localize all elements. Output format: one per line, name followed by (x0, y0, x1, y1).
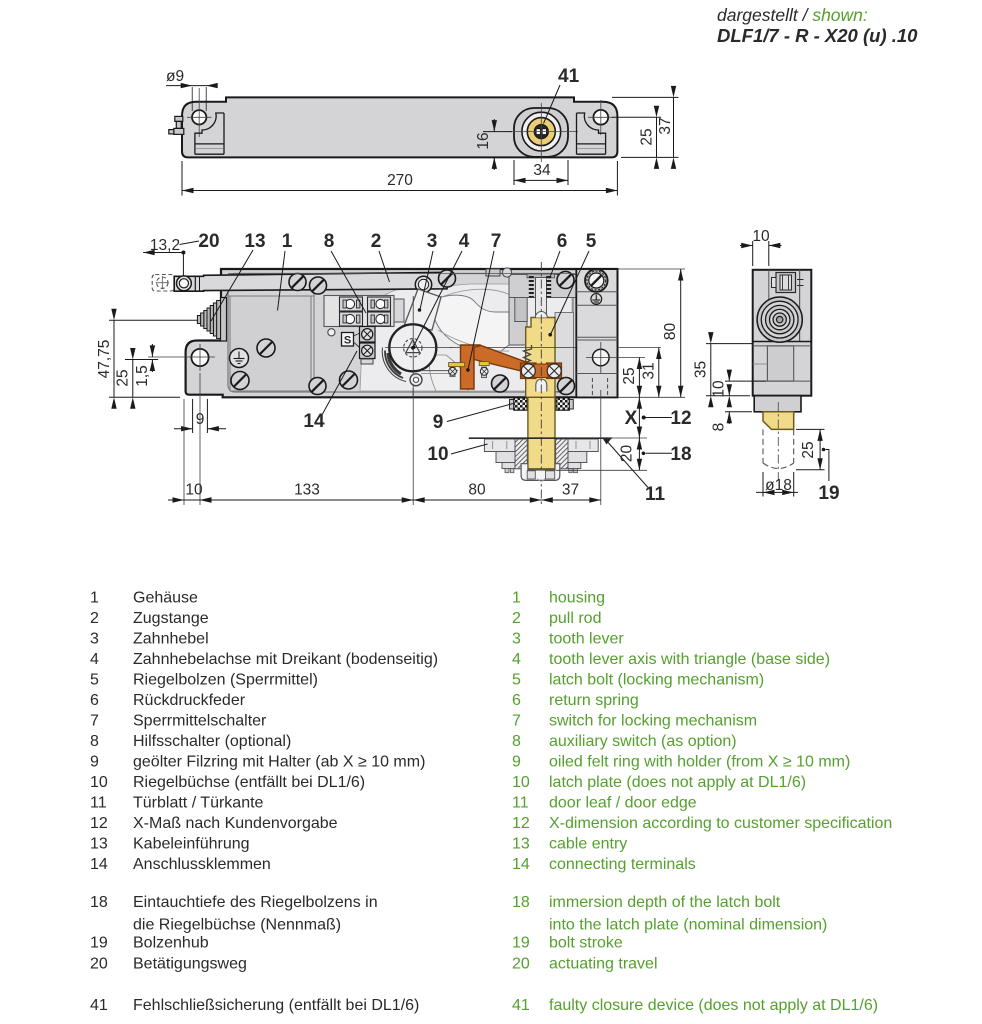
svg-text:tooth lever axis with triangle: tooth lever axis with triangle (base sid… (549, 651, 830, 668)
svg-text:5: 5 (512, 672, 521, 689)
svg-text:14: 14 (512, 856, 530, 873)
svg-text:X-Maß nach Kundenvorgabe: X-Maß nach Kundenvorgabe (133, 815, 338, 832)
svg-text:die Riegelbüchse (Nennmaß): die Riegelbüchse (Nennmaß) (133, 917, 341, 934)
svg-text:oiled felt ring with holder (f: oiled felt ring with holder (from X ≥ 10… (549, 754, 850, 771)
svg-text:6: 6 (90, 692, 99, 709)
svg-text:S: S (344, 335, 351, 347)
svg-text:9: 9 (90, 754, 99, 771)
svg-text:1: 1 (90, 590, 99, 607)
svg-text:Anschlussklemmen: Anschlussklemmen (133, 856, 271, 873)
svg-text:DLF1/7 - R - X20 (u) .10: DLF1/7 - R - X20 (u) .10 (717, 25, 918, 46)
svg-text:9: 9 (433, 412, 444, 433)
svg-text:12: 12 (670, 408, 691, 429)
svg-text:10: 10 (711, 380, 728, 398)
svg-text:13: 13 (512, 836, 530, 853)
svg-text:31: 31 (641, 362, 658, 379)
svg-text:Rückdruckfeder: Rückdruckfeder (133, 692, 246, 709)
svg-text:latch plate (does not apply at: latch plate (does not apply at DL1/6) (549, 774, 806, 791)
svg-text:19: 19 (818, 483, 839, 504)
svg-text:Zahnhebel: Zahnhebel (133, 631, 209, 648)
svg-text:immersion depth of the latch b: immersion depth of the latch bolt (549, 894, 781, 911)
svg-text:7: 7 (491, 231, 502, 252)
svg-text:20: 20 (198, 231, 219, 252)
svg-text:270: 270 (387, 172, 413, 189)
svg-text:8: 8 (512, 733, 521, 750)
svg-text:20: 20 (90, 956, 108, 973)
svg-text:X: X (625, 408, 638, 429)
svg-text:12: 12 (512, 815, 530, 832)
svg-text:25: 25 (621, 367, 638, 384)
svg-text:35: 35 (693, 361, 710, 378)
svg-text:Türblatt / Türkante: Türblatt / Türkante (133, 795, 264, 812)
svg-text:80: 80 (662, 323, 679, 341)
svg-text:25: 25 (639, 128, 656, 145)
svg-text:11: 11 (512, 795, 529, 812)
svg-text:18: 18 (90, 894, 108, 911)
svg-text:1: 1 (512, 590, 521, 607)
svg-text:25: 25 (115, 369, 132, 386)
svg-text:Sperrmittelschalter: Sperrmittelschalter (133, 713, 267, 730)
svg-text:47,75: 47,75 (96, 340, 113, 379)
svg-text:7: 7 (90, 713, 99, 730)
svg-text:6: 6 (557, 231, 568, 252)
svg-text:133: 133 (294, 482, 320, 499)
svg-text:12: 12 (90, 815, 108, 832)
svg-text:9: 9 (512, 754, 521, 771)
svg-text:faulty closure device (does no: faulty closure device (does not apply at… (549, 997, 878, 1014)
svg-text:16: 16 (475, 132, 492, 149)
svg-text:bolt stroke: bolt stroke (549, 935, 623, 952)
svg-text:Hilfsschalter (optional): Hilfsschalter (optional) (133, 733, 291, 750)
svg-text:41: 41 (558, 66, 580, 87)
svg-text:latch bolt (locking mechanism): latch bolt (locking mechanism) (549, 672, 764, 689)
svg-text:10: 10 (752, 228, 770, 245)
svg-text:3: 3 (512, 631, 521, 648)
svg-text:6: 6 (512, 692, 521, 709)
svg-text:X-dimension according to custo: X-dimension according to customer specif… (549, 815, 892, 832)
svg-text:2: 2 (371, 231, 382, 252)
svg-text:Fehlschließsicherung (entfällt: Fehlschließsicherung (entfällt bei DL1/6… (133, 997, 419, 1014)
svg-text:14: 14 (303, 411, 325, 432)
svg-text:Zahnhebelachse mit Dreikant (b: Zahnhebelachse mit Dreikant (bodenseitig… (133, 651, 438, 668)
svg-text:8: 8 (324, 231, 335, 252)
svg-text:41: 41 (90, 997, 108, 1014)
svg-text:3: 3 (427, 231, 438, 252)
svg-text:Riegelbolzen (Sperrmittel): Riegelbolzen (Sperrmittel) (133, 672, 318, 689)
svg-text:dargestellt / shown:: dargestellt / shown: (717, 5, 868, 25)
svg-text:8: 8 (90, 733, 99, 750)
svg-text:3: 3 (90, 631, 99, 648)
svg-text:10: 10 (427, 444, 448, 465)
svg-text:Betätigungsweg: Betätigungsweg (133, 956, 247, 973)
svg-text:pull rod: pull rod (549, 610, 601, 627)
svg-text:housing: housing (549, 590, 605, 607)
svg-text:into the latch plate (nominal: into the latch plate (nominal dimension) (549, 917, 827, 934)
svg-text:80: 80 (468, 482, 486, 499)
svg-text:1,5: 1,5 (134, 365, 151, 387)
svg-text:14: 14 (90, 856, 108, 873)
svg-text:Kabeleinführung: Kabeleinführung (133, 836, 250, 853)
svg-text:13: 13 (90, 836, 108, 853)
svg-text:2: 2 (512, 610, 521, 627)
svg-text:geölter Filzring mit Halter (a: geölter Filzring mit Halter (ab X ≥ 10 m… (133, 754, 425, 771)
svg-text:25: 25 (800, 441, 817, 458)
svg-text:auxiliary switch (as option): auxiliary switch (as option) (549, 733, 737, 750)
svg-text:19: 19 (512, 935, 530, 952)
svg-text:return spring: return spring (549, 692, 639, 709)
svg-text:Eintauchtiefe des Riegelbolzen: Eintauchtiefe des Riegelbolzens in (133, 894, 378, 911)
svg-text:1: 1 (282, 231, 293, 252)
svg-text:Riegelbüchse (entfällt bei DL1: Riegelbüchse (entfällt bei DL1/6) (133, 774, 365, 791)
svg-text:2: 2 (90, 610, 99, 627)
svg-text:ø18: ø18 (765, 477, 792, 494)
svg-text:4: 4 (90, 651, 99, 668)
svg-text:actuating travel: actuating travel (549, 956, 658, 973)
svg-text:37: 37 (657, 117, 674, 134)
svg-text:20: 20 (619, 445, 636, 463)
svg-text:Zugstange: Zugstange (133, 610, 209, 627)
svg-text:37: 37 (562, 482, 579, 499)
svg-text:34: 34 (533, 162, 551, 179)
svg-text:4: 4 (459, 231, 470, 252)
svg-text:7: 7 (512, 713, 521, 730)
svg-text:4: 4 (512, 651, 521, 668)
svg-text:10: 10 (90, 774, 108, 791)
svg-text:10: 10 (512, 774, 530, 791)
svg-text:Bolzenhub: Bolzenhub (133, 935, 209, 952)
svg-text:ø9: ø9 (166, 68, 184, 85)
svg-text:switch for locking mechanism: switch for locking mechanism (549, 713, 757, 730)
svg-text:10: 10 (185, 482, 203, 499)
svg-text:5: 5 (586, 231, 597, 252)
svg-text:13: 13 (244, 231, 265, 252)
svg-text:5: 5 (90, 672, 99, 689)
svg-text:18: 18 (512, 894, 530, 911)
svg-text:18: 18 (670, 444, 691, 465)
svg-text:tooth lever: tooth lever (549, 631, 624, 648)
svg-text:connecting terminals: connecting terminals (549, 856, 696, 873)
svg-text:8: 8 (711, 423, 728, 432)
svg-text:cable entry: cable entry (549, 836, 627, 853)
svg-text:19: 19 (90, 935, 108, 952)
svg-text:door leaf / door edge: door leaf / door edge (549, 795, 697, 812)
svg-text:41: 41 (512, 997, 530, 1014)
svg-text:20: 20 (512, 956, 530, 973)
svg-text:11: 11 (90, 795, 107, 812)
svg-text:Gehäuse: Gehäuse (133, 590, 198, 607)
